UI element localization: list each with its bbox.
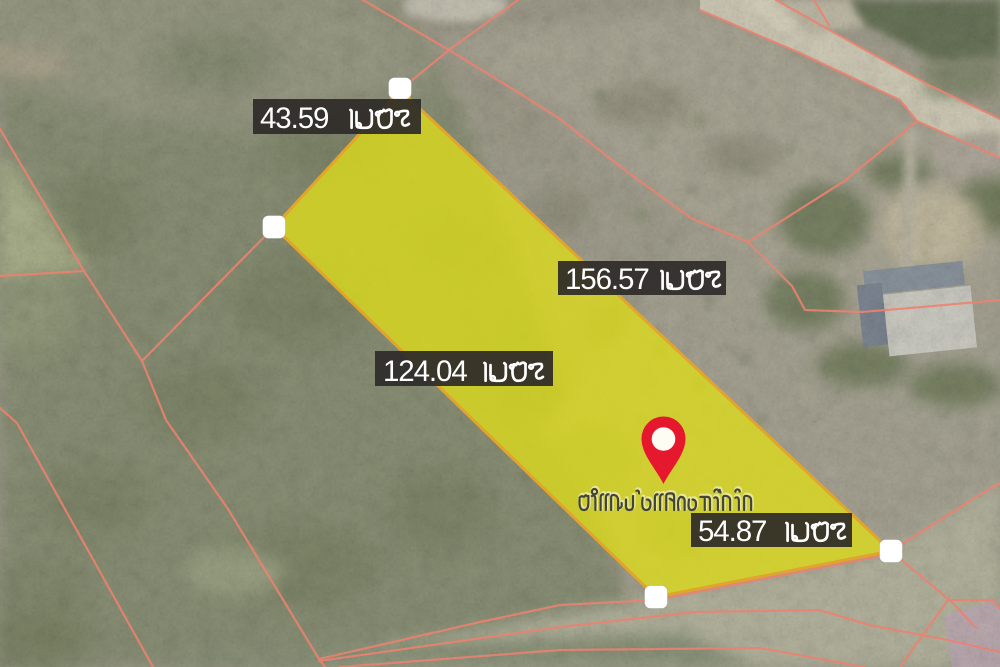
svg-text:54.87: 54.87 [698, 515, 766, 548]
svg-text:43.59: 43.59 [260, 102, 329, 135]
svg-text:156.57: 156.57 [565, 263, 649, 296]
svg-text:124.04: 124.04 [383, 355, 467, 388]
